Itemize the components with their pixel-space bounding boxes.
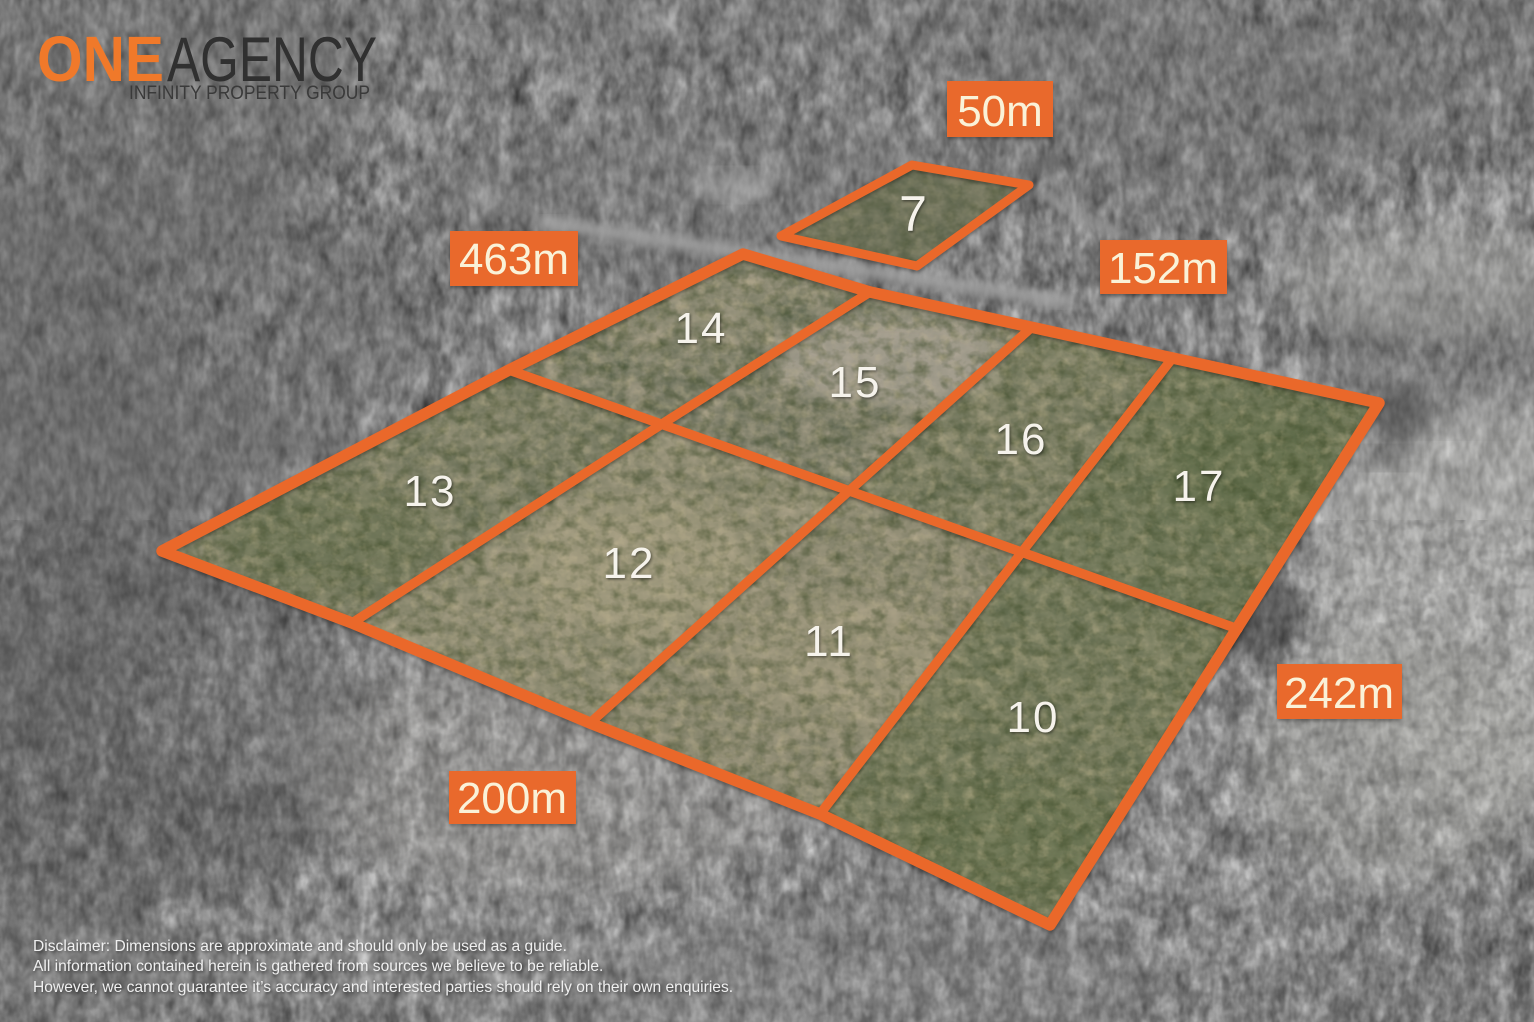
svg-text:13: 13	[404, 467, 457, 516]
svg-text:14: 14	[675, 304, 728, 353]
svg-text:17: 17	[1173, 462, 1226, 511]
svg-text:152m: 152m	[1108, 244, 1218, 293]
svg-text:INFINITY PROPERTY GROUP: INFINITY PROPERTY GROUP	[129, 82, 370, 104]
svg-text:However, we cannot guarantee i: However, we cannot guarantee it’s accura…	[33, 979, 733, 996]
svg-text:11: 11	[804, 617, 854, 666]
svg-text:15: 15	[829, 358, 882, 407]
svg-text:12: 12	[603, 539, 656, 588]
svg-text:50m: 50m	[957, 87, 1043, 136]
svg-text:10: 10	[1007, 693, 1060, 742]
svg-text:200m: 200m	[457, 774, 567, 823]
svg-text:Disclaimer: Dimensions are app: Disclaimer: Dimensions are approximate a…	[33, 938, 567, 955]
svg-text:16: 16	[995, 415, 1048, 464]
svg-text:242m: 242m	[1284, 669, 1394, 718]
svg-text:463m: 463m	[459, 235, 569, 284]
svg-text:7: 7	[899, 186, 929, 242]
svg-text:All information contained here: All information contained herein is gath…	[33, 958, 603, 975]
